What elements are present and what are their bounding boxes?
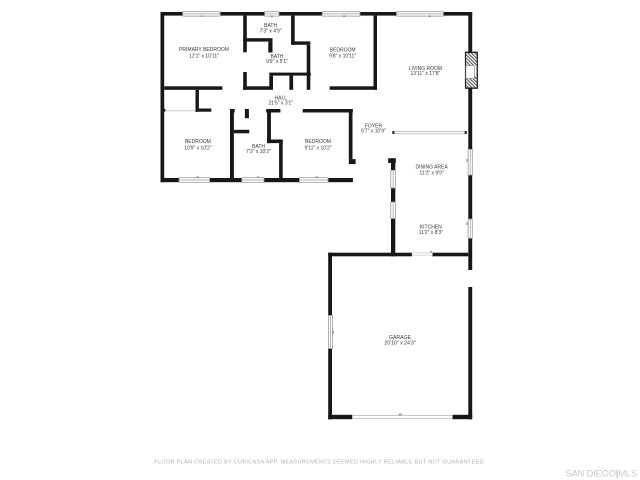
svg-text:11'2" x 8'3": 11'2" x 8'3" — [419, 230, 443, 236]
svg-text:6'7" x 10'9": 6'7" x 10'9" — [361, 129, 386, 135]
svg-text:9'8" x 10'11": 9'8" x 10'11" — [329, 53, 356, 59]
svg-text:7'3" x 4'9": 7'3" x 4'9" — [260, 28, 282, 34]
svg-text:10'9" x 10'2": 10'9" x 10'2" — [184, 145, 212, 151]
svg-text:9'9" x 5'1": 9'9" x 5'1" — [266, 59, 288, 65]
svg-text:12'1" x 10'11": 12'1" x 10'11" — [189, 53, 219, 59]
svg-text:11'2" x 9'9": 11'2" x 9'9" — [419, 170, 443, 176]
svg-text:21'5" x 3'1": 21'5" x 3'1" — [268, 101, 293, 107]
svg-text:13'11" x 17'8": 13'11" x 17'8" — [410, 71, 440, 77]
svg-text:PRIMARY BEDROOM: PRIMARY BEDROOM — [179, 47, 229, 53]
svg-text:BEDROOM: BEDROOM — [305, 139, 331, 145]
svg-text:BEDROOM: BEDROOM — [185, 139, 211, 145]
svg-text:9'11" x 10'2": 9'11" x 10'2" — [304, 145, 331, 151]
svg-text:20'10" x 24'3": 20'10" x 24'3" — [384, 341, 415, 347]
svg-text:7'3" x 10'2": 7'3" x 10'2" — [246, 149, 271, 155]
svg-text:SAN DIEGO|MLS: SAN DIEGO|MLS — [566, 468, 637, 478]
svg-text:FLOOR PLAN CREATED BY CUBICASA: FLOOR PLAN CREATED BY CUBICASA APP. MEAS… — [154, 459, 486, 465]
